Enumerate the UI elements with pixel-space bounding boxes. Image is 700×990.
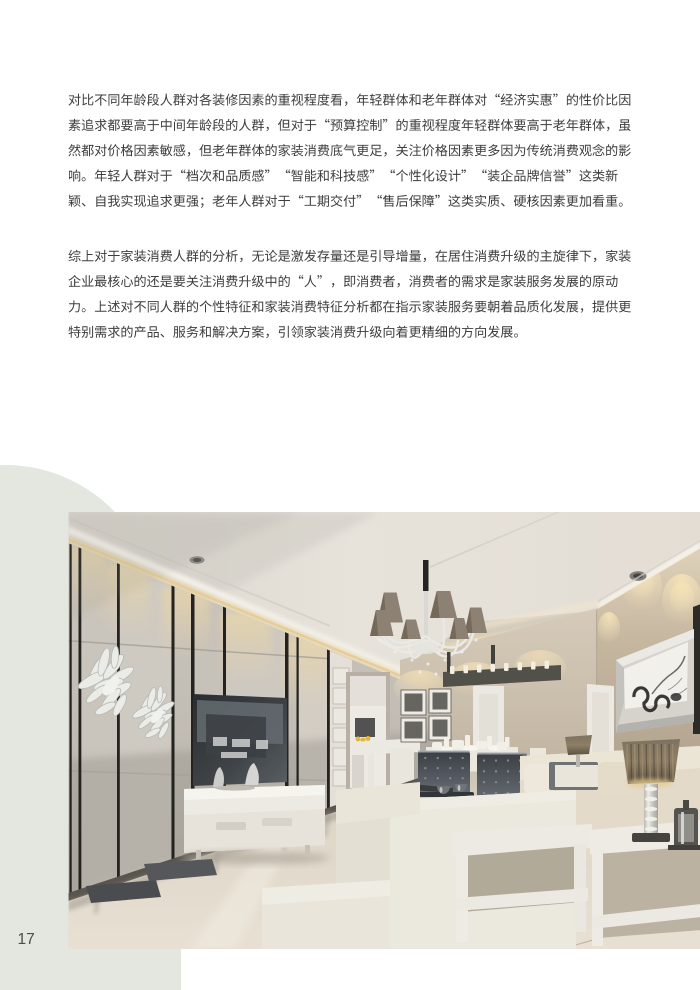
svg-text:17: 17: [18, 931, 35, 948]
